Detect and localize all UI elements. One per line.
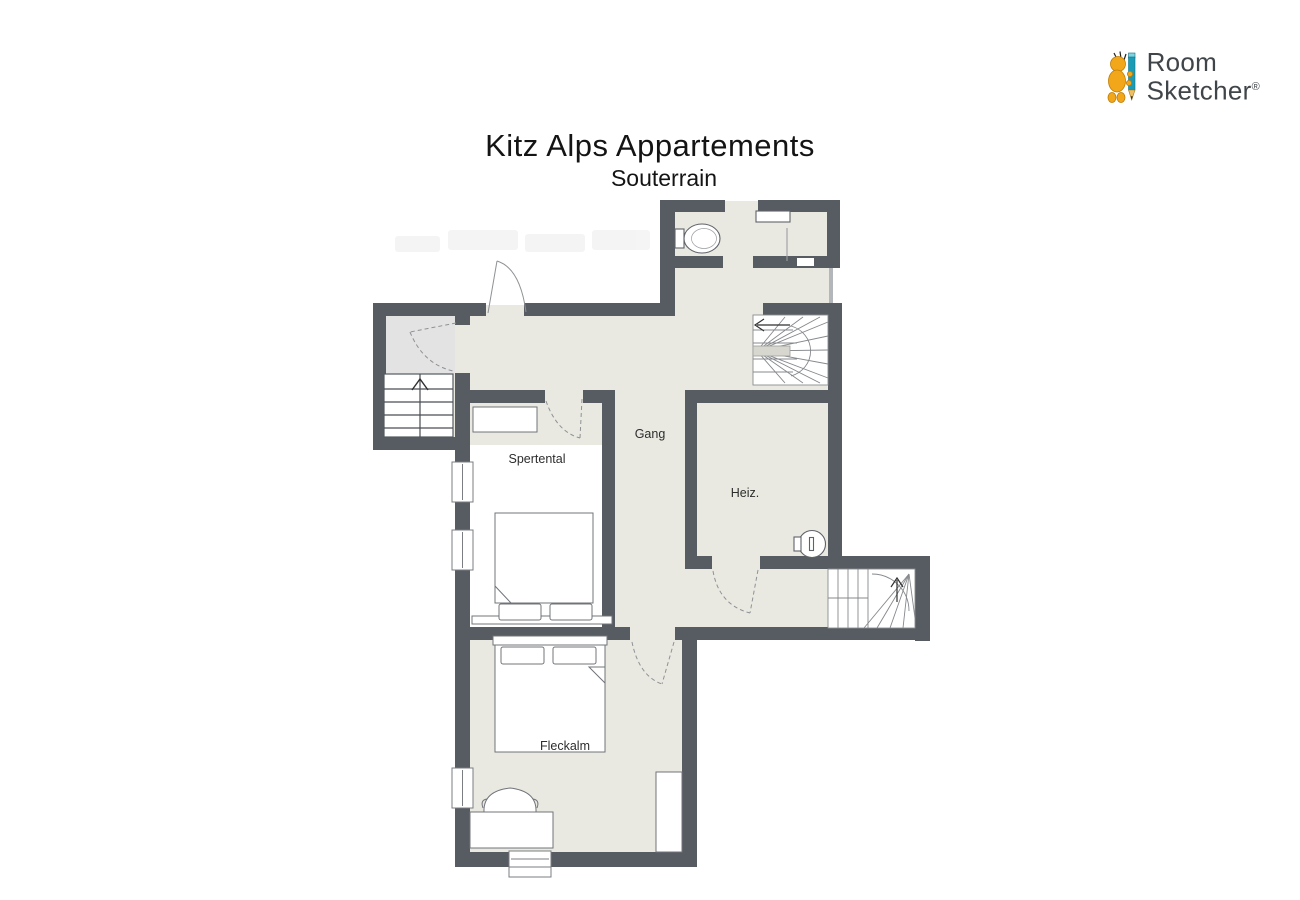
window — [509, 851, 551, 877]
headboard — [493, 636, 607, 645]
wall-segment — [455, 852, 697, 867]
pillow — [553, 647, 596, 664]
pillow — [501, 647, 544, 664]
wardrobe-fleckalm — [656, 772, 682, 852]
sliding-door-mark — [797, 258, 814, 266]
room-label-heiz: Heiz. — [731, 486, 759, 500]
wall-segment — [660, 256, 723, 268]
staircase-winder-upper — [753, 315, 828, 385]
desk — [470, 812, 553, 848]
wall-segment — [685, 390, 697, 556]
wall-segment — [455, 316, 470, 325]
wall-segment — [685, 390, 842, 403]
opening-bathroom-top — [725, 201, 758, 213]
room-label-spertental: Spertental — [509, 452, 566, 466]
wall-segment — [828, 390, 842, 556]
window — [452, 462, 473, 502]
wall-segment — [373, 303, 486, 316]
opening-hall-top-door — [486, 305, 524, 316]
bed-spertental — [472, 513, 612, 624]
staircase-up-entry — [384, 374, 453, 437]
wall-segment — [753, 256, 840, 268]
wall-segment — [682, 640, 697, 867]
pillow — [499, 604, 541, 620]
floor-entry — [383, 316, 455, 374]
wall-segment — [524, 303, 660, 316]
closet-spertental — [473, 407, 537, 432]
upper-floor-ghost — [395, 230, 650, 252]
page: Kitz Alps Appartements Souterrain Room S… — [0, 0, 1300, 900]
window — [452, 530, 473, 570]
wall-segment — [685, 556, 712, 569]
bed-fleckalm — [493, 636, 607, 752]
wall-segment — [675, 627, 930, 640]
shelf — [756, 211, 790, 222]
wall-segment — [760, 556, 930, 569]
mattress — [495, 513, 593, 603]
room-label-gang: Gang — [635, 427, 666, 441]
floor-plan: Gang Spertental Heiz. Fleckalm — [0, 0, 1300, 900]
staircase-winder-lower-right — [828, 569, 915, 628]
wall-segment — [828, 303, 842, 403]
wall-segment — [660, 200, 725, 212]
wall-segment — [602, 390, 615, 627]
wall-segment — [470, 390, 545, 403]
pillow — [550, 604, 592, 620]
room-label-fleckalm: Fleckalm — [540, 739, 590, 753]
wall-segment — [915, 556, 930, 641]
window — [452, 768, 473, 808]
